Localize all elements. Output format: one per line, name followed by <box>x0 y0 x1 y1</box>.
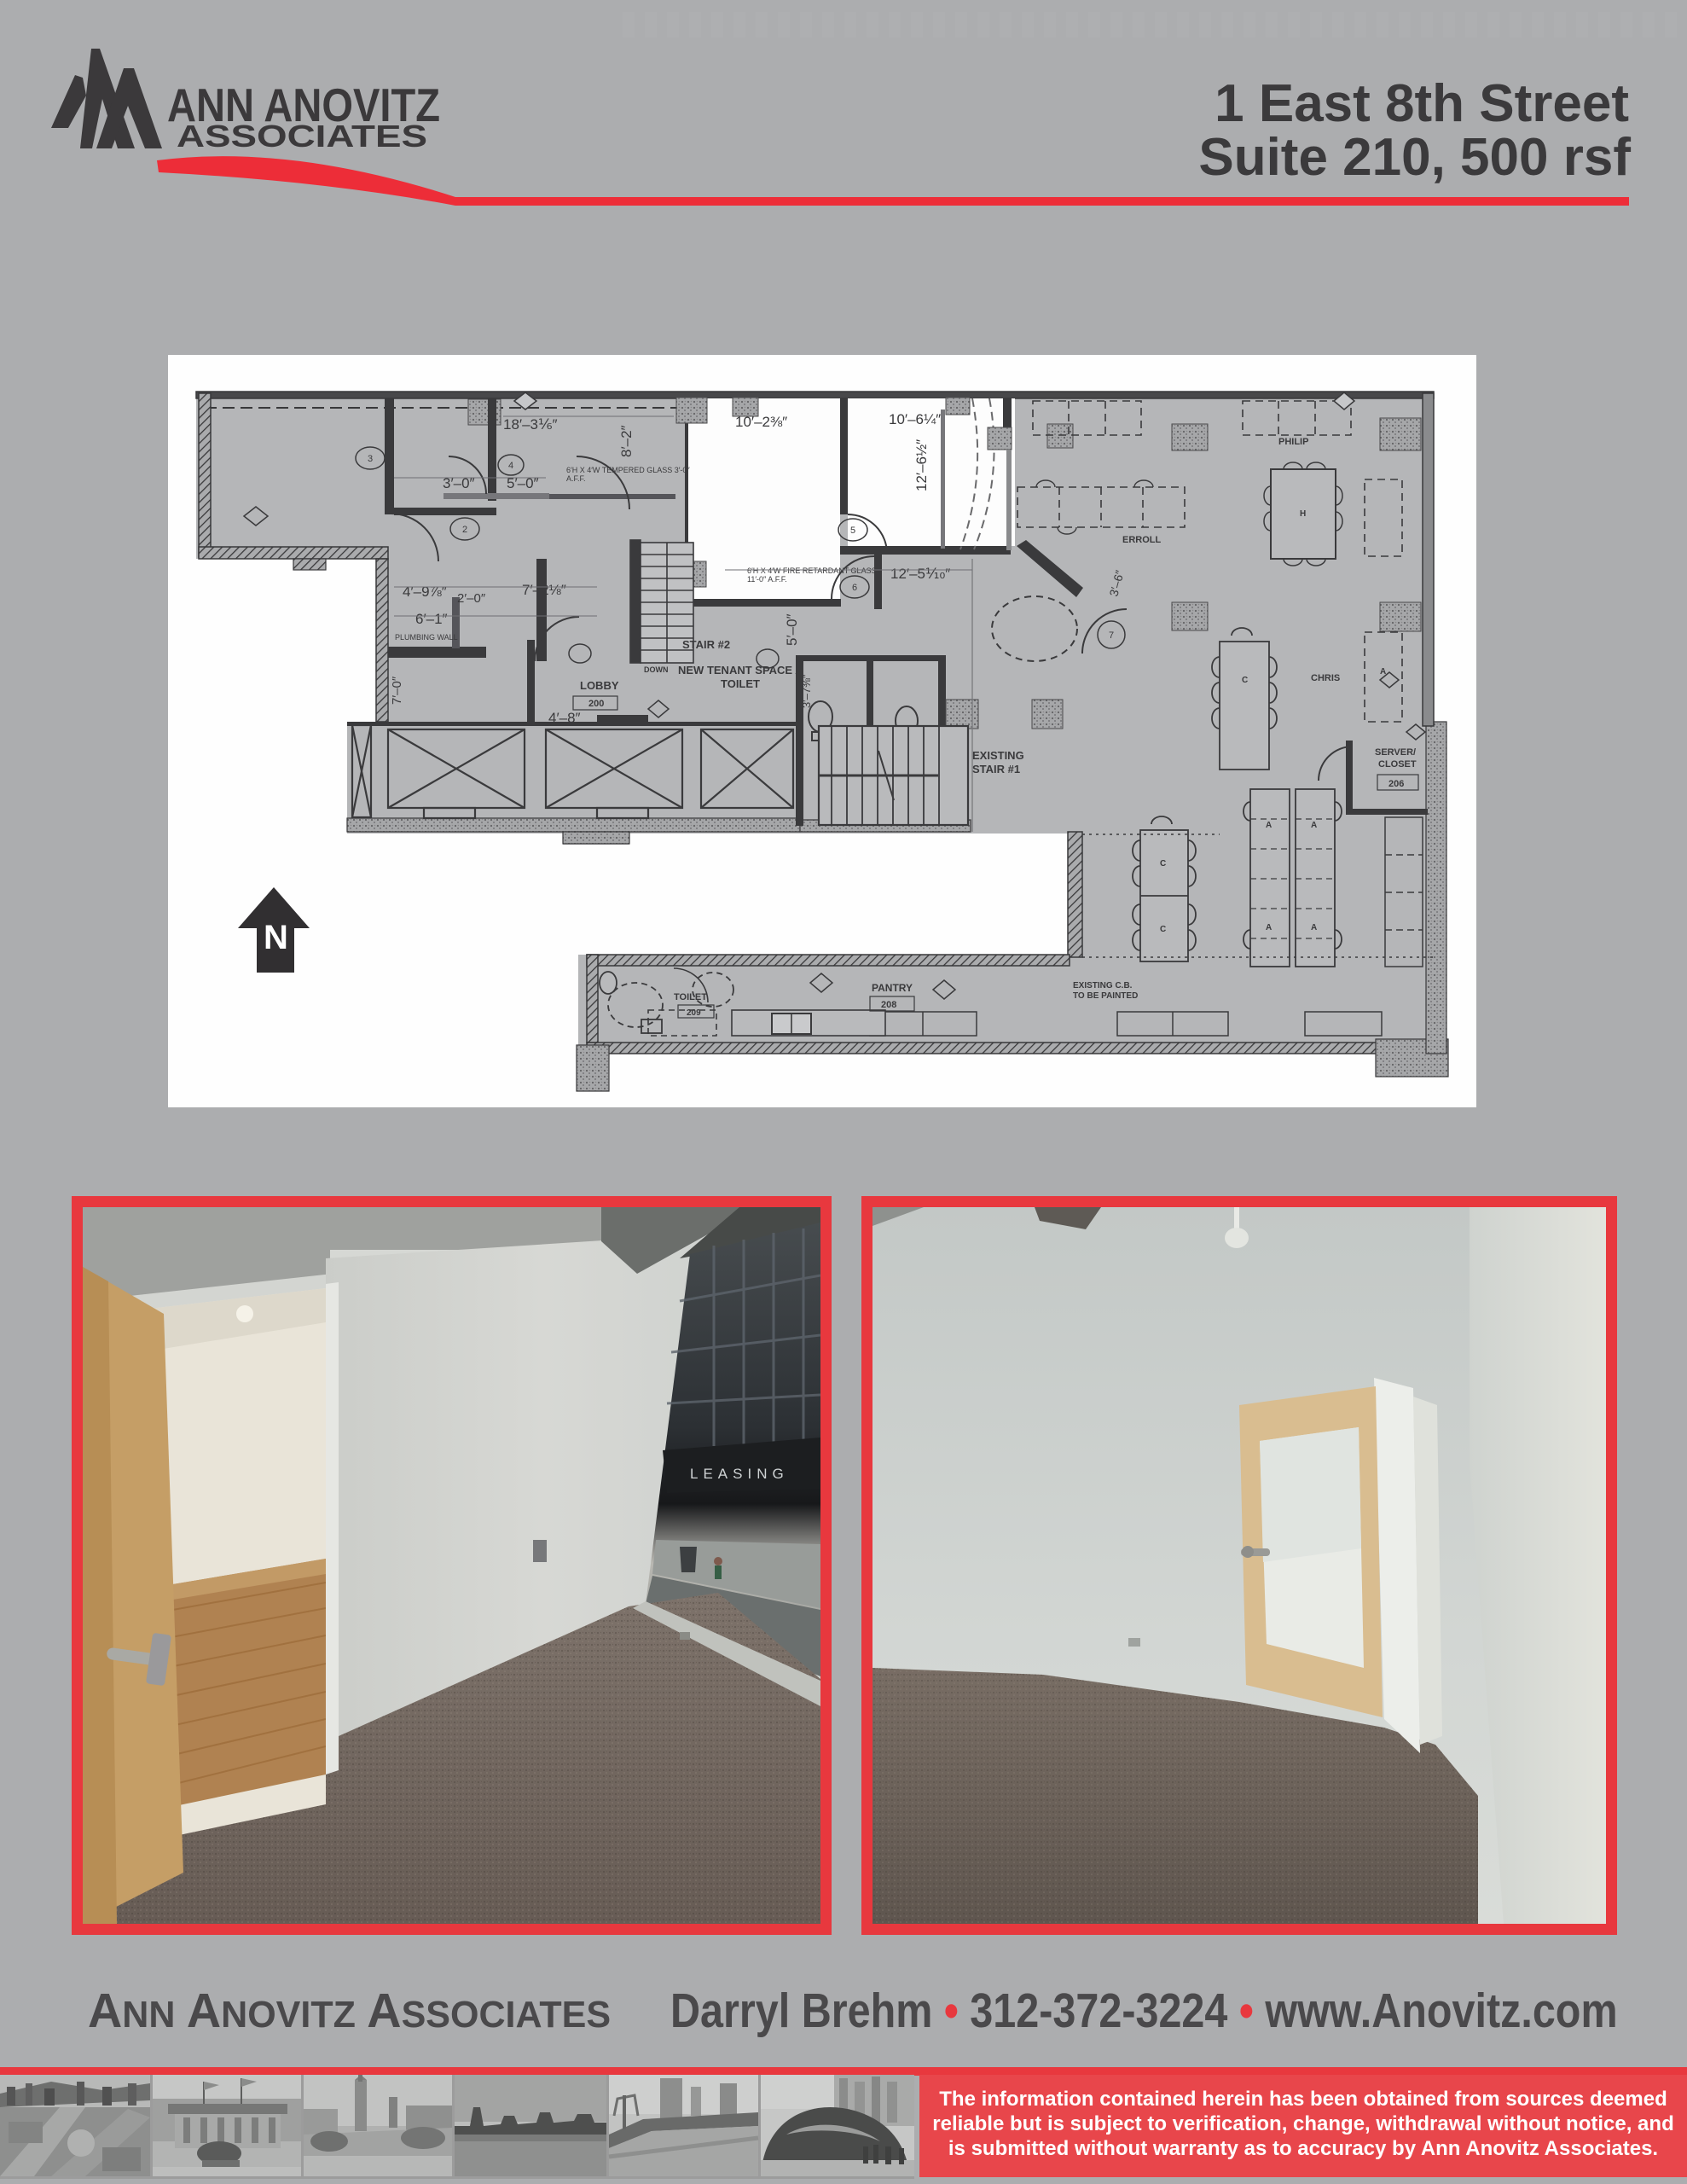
svg-text:NEW TENANT SPACE A: NEW TENANT SPACE A <box>678 664 803 677</box>
svg-text:4′–8″: 4′–8″ <box>548 710 581 726</box>
svg-text:7′–2⅛″: 7′–2⅛″ <box>522 582 566 598</box>
svg-text:N: N <box>264 919 288 956</box>
svg-text:A: A <box>1266 923 1272 932</box>
svg-text:LOBBY: LOBBY <box>580 679 619 692</box>
svg-text:DOWN: DOWN <box>644 665 669 674</box>
svg-text:7′–0″: 7′–0″ <box>390 676 404 705</box>
svg-text:PANTRY: PANTRY <box>872 982 913 994</box>
svg-text:EXISTING C.B.: EXISTING C.B. <box>1073 981 1133 990</box>
svg-text:206: 206 <box>1388 779 1404 789</box>
svg-text:CLOSET: CLOSET <box>1378 759 1417 770</box>
svg-text:C: C <box>1160 925 1166 934</box>
svg-text:TOILET: TOILET <box>721 677 760 690</box>
svg-text:SERVER/: SERVER/ <box>1375 747 1416 758</box>
svg-text:C: C <box>1242 676 1248 685</box>
svg-text:ASSOCIATES: ASSOCIATES <box>177 119 427 154</box>
svg-text:STAIR #1: STAIR #1 <box>972 763 1020 775</box>
svg-text:C: C <box>1160 859 1166 868</box>
svg-text:ERROLL: ERROLL <box>1122 535 1162 545</box>
svg-text:2: 2 <box>462 525 467 535</box>
svg-text:EXISTING: EXISTING <box>972 749 1024 762</box>
svg-text:200: 200 <box>588 699 604 709</box>
svg-text:4′–9⅞″: 4′–9⅞″ <box>403 584 447 600</box>
svg-text:A: A <box>1311 923 1317 932</box>
svg-text:3′–7⅜″: 3′–7⅜″ <box>800 674 813 708</box>
svg-text:4: 4 <box>508 461 513 471</box>
svg-text:6: 6 <box>852 583 857 593</box>
svg-text:7: 7 <box>1109 630 1114 641</box>
svg-text:2′–0″: 2′–0″ <box>457 591 486 606</box>
svg-text:A.F.F.: A.F.F. <box>566 474 586 483</box>
svg-text:6′H X 4′W FIRE RETARDANT GLASS: 6′H X 4′W FIRE RETARDANT GLASS <box>747 566 877 575</box>
svg-text:3: 3 <box>368 454 373 464</box>
svg-text:A: A <box>1311 821 1317 830</box>
svg-text:5′–0″: 5′–0″ <box>784 613 800 646</box>
svg-text:CHRIS: CHRIS <box>1311 673 1340 683</box>
svg-text:LEASING: LEASING <box>690 1466 789 1482</box>
svg-text:H: H <box>1300 509 1306 519</box>
svg-text:PHILIP: PHILIP <box>1278 437 1308 447</box>
svg-text:10′–2⅜″: 10′–2⅜″ <box>735 414 787 430</box>
svg-text:6′–1″: 6′–1″ <box>415 611 448 627</box>
svg-text:A: A <box>1266 821 1272 830</box>
svg-text:10′–6¼″: 10′–6¼″ <box>889 411 941 427</box>
svg-text:TO BE PAINTED: TO BE PAINTED <box>1073 991 1138 1001</box>
svg-text:11′-0″ A.F.F.: 11′-0″ A.F.F. <box>747 575 787 584</box>
svg-text:5: 5 <box>850 526 855 536</box>
svg-text:12′–5⅒″: 12′–5⅒″ <box>890 566 950 582</box>
svg-text:STAIR #2: STAIR #2 <box>682 638 730 651</box>
svg-text:6′H X 4′W TEMPERED GLASS 3′-0″: 6′H X 4′W TEMPERED GLASS 3′-0″ <box>566 466 690 474</box>
svg-text:TOILET: TOILET <box>674 992 707 1002</box>
svg-text:208: 208 <box>881 1000 896 1010</box>
svg-text:12′–6½″: 12′–6½″ <box>913 439 930 491</box>
svg-text:8′–2″: 8′–2″ <box>618 425 635 457</box>
svg-text:209: 209 <box>687 1008 701 1018</box>
svg-text:18′–3⅙″: 18′–3⅙″ <box>503 416 558 433</box>
svg-text:PLUMBING WALL: PLUMBING WALL <box>395 633 458 642</box>
